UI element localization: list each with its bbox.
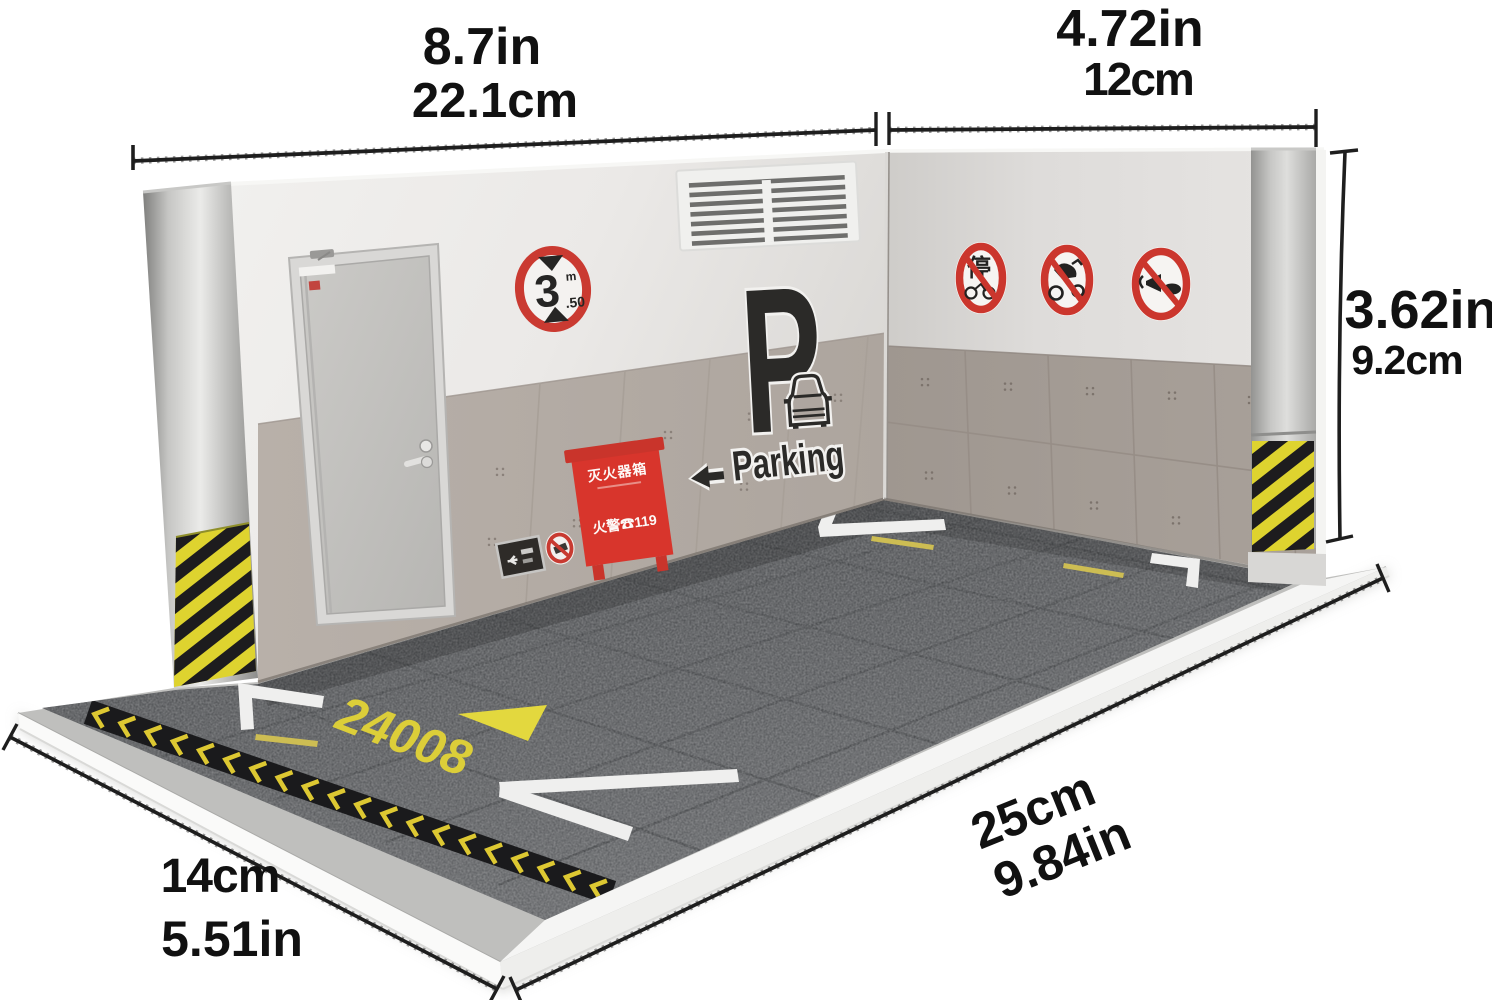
svg-text:.50: .50 xyxy=(565,293,586,311)
svg-text:5.51in: 5.51in xyxy=(161,911,303,967)
svg-text:3: 3 xyxy=(532,265,561,318)
svg-text:m: m xyxy=(565,269,577,284)
svg-text:3.62in: 3.62in xyxy=(1344,280,1492,340)
svg-text:9.2cm: 9.2cm xyxy=(1351,337,1462,383)
svg-text:22.1cm: 22.1cm xyxy=(412,74,578,128)
svg-text:14cm: 14cm xyxy=(161,850,280,903)
svg-text:4.72in: 4.72in xyxy=(1056,0,1203,58)
svg-text:12cm: 12cm xyxy=(1083,53,1193,105)
svg-text:8.7in: 8.7in xyxy=(423,18,542,76)
